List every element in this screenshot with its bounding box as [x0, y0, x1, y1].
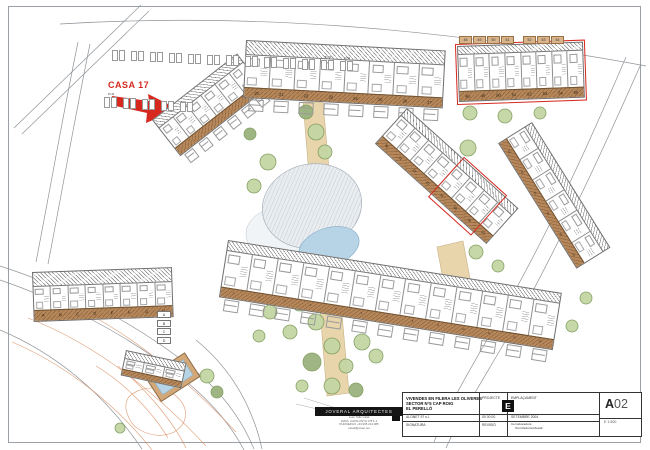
unit-room-mark — [253, 258, 266, 269]
unit-number — [161, 381, 181, 385]
unit-room-mark — [122, 285, 131, 292]
parking-stall — [188, 54, 202, 65]
unit-room-mark — [301, 288, 313, 299]
unit-cell — [51, 286, 69, 310]
unit-cell — [369, 62, 396, 95]
unit-room-mark — [140, 298, 148, 305]
tree-icon — [566, 320, 578, 332]
unit-room-mark — [396, 85, 407, 94]
unit-room-mark — [532, 324, 544, 335]
unit-cell — [138, 283, 156, 307]
parked-car-mark — [298, 102, 314, 114]
road-line — [22, 11, 149, 134]
unit-room-mark — [441, 180, 452, 191]
unit-number: 20 — [244, 90, 269, 95]
unit-number: E — [103, 311, 120, 316]
unit-room-mark — [455, 193, 466, 204]
unit-cell — [568, 51, 584, 87]
unit-stairs-mark — [418, 294, 427, 306]
unit-room-mark — [479, 194, 491, 206]
parking-stall — [207, 55, 221, 66]
unit-room-mark — [381, 279, 394, 290]
parking-stall — [302, 59, 316, 70]
unit-cell — [474, 54, 491, 91]
sheet-number-letter: A — [605, 397, 614, 411]
tree-icon — [498, 109, 512, 123]
unit-number: G — [138, 310, 155, 315]
casa-17-label: CASA 17 — [108, 80, 149, 90]
unit-stairs-mark — [342, 282, 351, 294]
unit-strip — [34, 282, 173, 310]
unit-room-mark — [327, 292, 339, 303]
unit-stairs-mark — [515, 65, 519, 76]
unit-room-mark — [70, 300, 78, 307]
unit-room-mark — [232, 68, 243, 79]
unit-room-mark — [176, 112, 187, 123]
building-row-r3: 4849505152535455 — [457, 42, 585, 102]
unit-cell — [68, 285, 86, 309]
revisio-label: REVISIÓ — [482, 423, 496, 427]
car-stall-mark — [104, 97, 110, 108]
unit-stairs-mark — [239, 266, 248, 278]
unit-number: F — [121, 310, 138, 315]
unit-room-mark — [70, 287, 79, 294]
tree-icon — [296, 380, 308, 392]
unit-stairs-mark — [156, 369, 162, 373]
unit-cell — [103, 284, 121, 308]
unit-stairs-mark — [484, 66, 488, 77]
unit-number: 54 — [553, 91, 569, 96]
parking-stall — [283, 58, 297, 69]
unit-number: 48 — [460, 94, 476, 99]
sheet-letter-badge: E — [502, 400, 514, 412]
unit-stairs-mark — [285, 68, 292, 78]
car-stall-mark — [168, 101, 174, 112]
car-stall-mark — [283, 58, 289, 69]
unit-room-mark — [451, 169, 463, 181]
car-stall-mark — [214, 55, 220, 66]
unit-stairs-mark — [79, 293, 84, 300]
unit-room-mark — [427, 168, 438, 179]
unit-number: 12 — [501, 335, 527, 342]
parking-stall — [180, 102, 194, 113]
unit-stairs-mark — [573, 227, 582, 236]
stall-number: 51 52 — [321, 56, 335, 59]
car-stall-mark — [290, 58, 296, 69]
unit-room-mark — [35, 288, 44, 295]
unit-room-mark — [330, 270, 343, 281]
unit-cell — [120, 283, 138, 307]
unit-room-mark — [276, 284, 288, 295]
emplacament-label: EMPLAÇAMENT — [511, 396, 537, 400]
unit-room-mark — [247, 77, 258, 86]
driveway-cell — [292, 101, 318, 114]
unit-room-mark — [139, 285, 148, 292]
unit-room-mark — [352, 296, 364, 307]
unit-number: 11 — [476, 331, 502, 338]
architect-logo: JOVERAL ARQUITECTES Joan Tallé Calaf AVD… — [315, 407, 403, 431]
unit-room-mark — [437, 156, 449, 168]
unit-number — [122, 372, 142, 376]
unit-room-mark — [507, 56, 515, 65]
tree-icon — [369, 349, 383, 363]
car-stall-mark — [142, 99, 148, 110]
signatura-label: SIGNATURA — [406, 423, 426, 427]
tree-icon — [349, 383, 363, 397]
unit-room-mark — [157, 297, 165, 304]
project-title-line: VIVENDES EN FILERA LES OLIVERES — [406, 396, 482, 401]
unit-room-mark — [475, 57, 483, 66]
unit-stairs-mark — [495, 218, 504, 227]
car-stall-mark — [245, 56, 251, 67]
building-row-r2: 2021222324252627 — [242, 40, 445, 120]
tree-icon — [469, 245, 483, 259]
unit-cell — [418, 64, 444, 97]
unit-number: 55 — [568, 90, 584, 95]
unit-cell — [505, 53, 522, 90]
unit-stairs-mark — [577, 63, 581, 74]
driveway-cell — [242, 98, 268, 111]
car-stall-mark — [176, 53, 182, 64]
unit-room-mark — [460, 58, 468, 67]
unit-number: 23 — [318, 94, 343, 99]
unit-stairs-mark — [444, 298, 453, 310]
unit-number: 24 — [343, 96, 368, 101]
parking-stall: 53 54 — [340, 61, 354, 72]
tree-icon — [308, 124, 324, 140]
unit-room-mark — [224, 276, 236, 287]
parking-stall — [123, 98, 137, 109]
unit-room-mark — [371, 83, 382, 92]
tree-icon — [260, 154, 276, 170]
parking-stall — [112, 50, 126, 61]
car-stall-mark — [321, 60, 327, 71]
stall-number-box: 51 — [501, 36, 514, 44]
unit-stairs-mark — [131, 291, 136, 298]
unit-room-mark — [87, 287, 96, 294]
tree-icon — [247, 179, 261, 193]
building-block: 4849505152535455 — [457, 42, 585, 102]
unit-number: 51 — [506, 92, 522, 97]
unit-room-mark — [399, 143, 410, 154]
car-stall-mark — [169, 53, 175, 64]
parking-stall — [161, 101, 175, 112]
unit-number: 9 — [425, 323, 451, 330]
unit-room-mark — [407, 283, 420, 294]
unit-room-mark — [569, 54, 577, 63]
date-text: SETEMBRE 2004 — [511, 415, 538, 419]
unit-room-mark — [105, 286, 114, 293]
unit-room-mark — [509, 299, 522, 310]
unit-room-mark — [165, 373, 174, 379]
parking-stall — [131, 51, 145, 62]
unit-room-mark — [122, 299, 130, 306]
unit-number: 13 — [527, 339, 553, 346]
unit-room-mark — [455, 312, 467, 323]
unit-number: 7 — [374, 315, 400, 322]
unit-room-mark — [421, 86, 432, 95]
sheet-number: A02 — [605, 397, 628, 411]
car-stall-mark — [150, 52, 156, 63]
unit-room-mark — [432, 287, 445, 298]
parking-stall — [245, 56, 259, 67]
unit-room-mark — [53, 301, 61, 308]
unit-stairs-mark — [310, 69, 317, 79]
unit-stairs-mark — [136, 365, 142, 369]
stall-number: 53 54 — [340, 57, 354, 60]
unit-stairs-mark — [499, 66, 503, 77]
unit-room-mark — [218, 79, 229, 90]
driveway-cell — [417, 107, 443, 120]
tree-icon — [200, 369, 214, 383]
unit-number: 3 — [272, 299, 298, 306]
parked-car-mark — [273, 101, 289, 113]
tree-icon — [324, 378, 340, 394]
unit-cell — [86, 285, 104, 309]
car-stall-mark — [161, 101, 167, 112]
unit-room-mark — [125, 365, 134, 371]
unit-room-mark — [204, 90, 215, 101]
unit-room-mark — [372, 64, 384, 73]
driveway-cell — [267, 99, 293, 112]
unit-cell — [490, 53, 507, 90]
unit-number: D — [86, 312, 103, 317]
car-stall-mark — [187, 102, 193, 113]
titleblock-divider — [599, 393, 600, 436]
parking-stall — [226, 55, 240, 66]
unit-room-mark — [506, 320, 518, 331]
unit-room-mark — [36, 302, 44, 309]
car-stall-mark — [309, 59, 315, 70]
unit-room-mark — [279, 262, 292, 273]
car-stall-mark — [131, 51, 137, 62]
unit-room-mark — [404, 304, 416, 315]
unit-stairs-mark — [521, 144, 530, 153]
parked-car-mark — [423, 109, 439, 121]
unit-number: 52 — [522, 92, 538, 97]
unit-stairs-mark — [166, 290, 171, 297]
unit-stairs-mark — [148, 291, 153, 298]
unit-room-mark — [491, 56, 499, 65]
parked-car-mark — [323, 103, 339, 115]
unit-cell — [394, 63, 421, 96]
unit-stairs-mark — [468, 67, 472, 78]
unit-number: B — [52, 313, 69, 318]
unit-stairs-mark — [384, 73, 391, 83]
car-stall-mark — [195, 54, 201, 65]
unit-number: 22 — [294, 93, 319, 98]
unit-room-mark — [468, 205, 479, 216]
unit-number — [142, 376, 162, 380]
tree-icon — [492, 260, 504, 272]
unit-stairs-mark — [175, 373, 181, 377]
unit-room-mark — [228, 254, 241, 265]
unit-number: 25 — [368, 97, 393, 102]
unit-stairs-mark — [470, 302, 479, 314]
unit-room-mark — [346, 82, 357, 91]
unit-number: 1 — [221, 291, 247, 298]
unit-stairs-mark — [521, 310, 530, 322]
unit-room-mark — [480, 316, 492, 327]
unit-stairs-mark — [546, 314, 555, 326]
car-stall-mark — [264, 57, 270, 68]
unit-room-mark — [396, 119, 408, 131]
unit-stairs-mark — [335, 71, 342, 81]
unit-stairs-mark — [316, 278, 325, 290]
tree-icon — [324, 338, 340, 354]
unit-stairs-mark — [560, 206, 569, 215]
tree-icon — [115, 423, 125, 433]
unit-stairs-mark — [290, 274, 299, 286]
unit-number: 21 — [269, 92, 294, 97]
unit-cell — [458, 54, 475, 91]
tree-icon — [211, 386, 223, 398]
promoter-text: ALONET 97 s.l. — [406, 415, 430, 419]
unit-cell — [552, 51, 569, 88]
driveway-cell — [342, 103, 368, 116]
unit-room-mark — [492, 78, 499, 87]
type-legend-box: D — [157, 337, 171, 344]
car-stall-mark — [112, 50, 118, 61]
unit-stairs-mark — [562, 63, 566, 74]
unit-number: 49 — [475, 93, 491, 98]
car-stall-mark — [123, 98, 129, 109]
unit-room-mark — [465, 181, 477, 193]
parked-car-mark — [373, 106, 389, 118]
building-row-r7: ABCDEFGH — [32, 267, 174, 322]
tree-icon — [303, 353, 321, 371]
tree-icon — [463, 106, 477, 120]
unit-cell — [529, 300, 559, 339]
unit-number: 2 — [246, 295, 272, 302]
unit-room-mark — [523, 77, 530, 86]
scale-text: E 1:500 — [604, 420, 616, 424]
car-stall-mark — [233, 55, 239, 66]
unit-cell — [34, 286, 52, 310]
unit-number: 27 — [417, 100, 442, 105]
car-stall-mark — [180, 102, 186, 113]
unit-strip — [458, 51, 583, 91]
parking-stall — [142, 99, 156, 110]
unit-stairs-mark — [393, 290, 402, 302]
tree-icon — [460, 140, 476, 156]
car-stall-mark — [157, 52, 163, 63]
unit-room-mark — [484, 295, 497, 306]
driveway-cell — [367, 104, 393, 117]
unit-room-mark — [145, 369, 154, 375]
tree-icon — [318, 145, 332, 159]
unit-number: 8 — [399, 319, 425, 326]
unit-room-mark — [507, 78, 514, 87]
stall-number-box: 50 — [487, 36, 500, 44]
contour-line — [126, 388, 186, 435]
unit-cell — [536, 52, 553, 89]
stall-number-box: 49 — [473, 36, 486, 44]
type-legend-box: B — [157, 320, 171, 327]
tree-icon — [534, 107, 546, 119]
car-stall-mark — [302, 59, 308, 70]
parking-stall: 51 52 — [321, 60, 335, 71]
logo-contact-line: estudi@coac.net — [315, 427, 403, 431]
unit-room-mark — [88, 300, 96, 307]
unit-room-mark — [410, 131, 422, 143]
unit-stairs-mark — [114, 292, 119, 299]
car-stall-mark — [340, 61, 346, 72]
road-line — [196, 340, 262, 449]
unit-number: 50 — [491, 93, 507, 98]
unit-room-mark — [539, 77, 546, 86]
unit-number: C — [69, 312, 86, 317]
unit-room-mark — [522, 55, 530, 64]
unit-room-mark — [570, 75, 577, 84]
stall-number: 35 36 — [104, 93, 118, 96]
stall-number-box: 54 — [551, 36, 564, 44]
unit-stairs-mark — [434, 76, 441, 86]
tree-icon — [339, 359, 353, 373]
car-stall-mark — [188, 54, 194, 65]
unit-room-mark — [304, 266, 317, 277]
unit-stairs-mark — [547, 186, 556, 195]
titleblock-divider — [599, 418, 642, 419]
unit-room-mark — [461, 79, 468, 88]
unit-stairs-mark — [367, 286, 376, 298]
date-code: 00 00 00 — [482, 415, 495, 419]
unit-room-mark — [162, 123, 173, 134]
unit-room-mark — [554, 76, 561, 85]
unit-stairs-mark — [265, 270, 274, 282]
unit-room-mark — [322, 81, 333, 90]
unit-room-mark — [424, 144, 436, 156]
unit-number: 26 — [392, 98, 417, 103]
sheet-number-digits: 02 — [614, 397, 628, 411]
unit-room-mark — [397, 65, 409, 74]
title-block: VIVENDES EN FILERA LES OLIVERES SECTOR N… — [402, 392, 642, 437]
unit-room-mark — [157, 284, 166, 291]
unit-room-mark — [250, 280, 262, 291]
unit-number: 5 — [323, 307, 349, 314]
stall-number-box: 48 — [459, 36, 472, 44]
unit-room-mark — [297, 79, 308, 88]
tree-icon — [283, 325, 297, 339]
unit-number: 4 — [297, 303, 323, 310]
driveway-cell — [317, 102, 343, 115]
type-legend-box: A — [157, 311, 171, 318]
car-stall-mark — [138, 51, 144, 62]
site-plan-sheet: 2021222324252627484950515253545530313233… — [0, 0, 650, 450]
projecte-label: PROJECTE — [482, 396, 500, 400]
unit-stairs-mark — [409, 74, 416, 84]
unit-cell — [521, 52, 538, 89]
unit-room-mark — [385, 131, 396, 142]
unit-room-mark — [413, 156, 424, 167]
tree-icon — [253, 330, 265, 342]
parked-car-mark — [248, 99, 264, 111]
unit-room-mark — [535, 303, 548, 314]
unit-room-mark — [272, 78, 283, 87]
unit-stairs-mark — [546, 64, 550, 75]
titleblock-divider — [403, 414, 599, 415]
unit-room-mark — [356, 274, 369, 285]
parking-stall — [264, 57, 278, 68]
type-legend-box: C — [157, 328, 171, 335]
unit-number: A — [34, 313, 51, 318]
road-line — [36, 42, 78, 262]
unit-room-mark — [553, 54, 561, 63]
unit-stairs-mark — [44, 294, 49, 301]
unit-room-mark — [458, 291, 471, 302]
parking-stall — [169, 53, 183, 64]
tree-icon — [354, 334, 370, 350]
